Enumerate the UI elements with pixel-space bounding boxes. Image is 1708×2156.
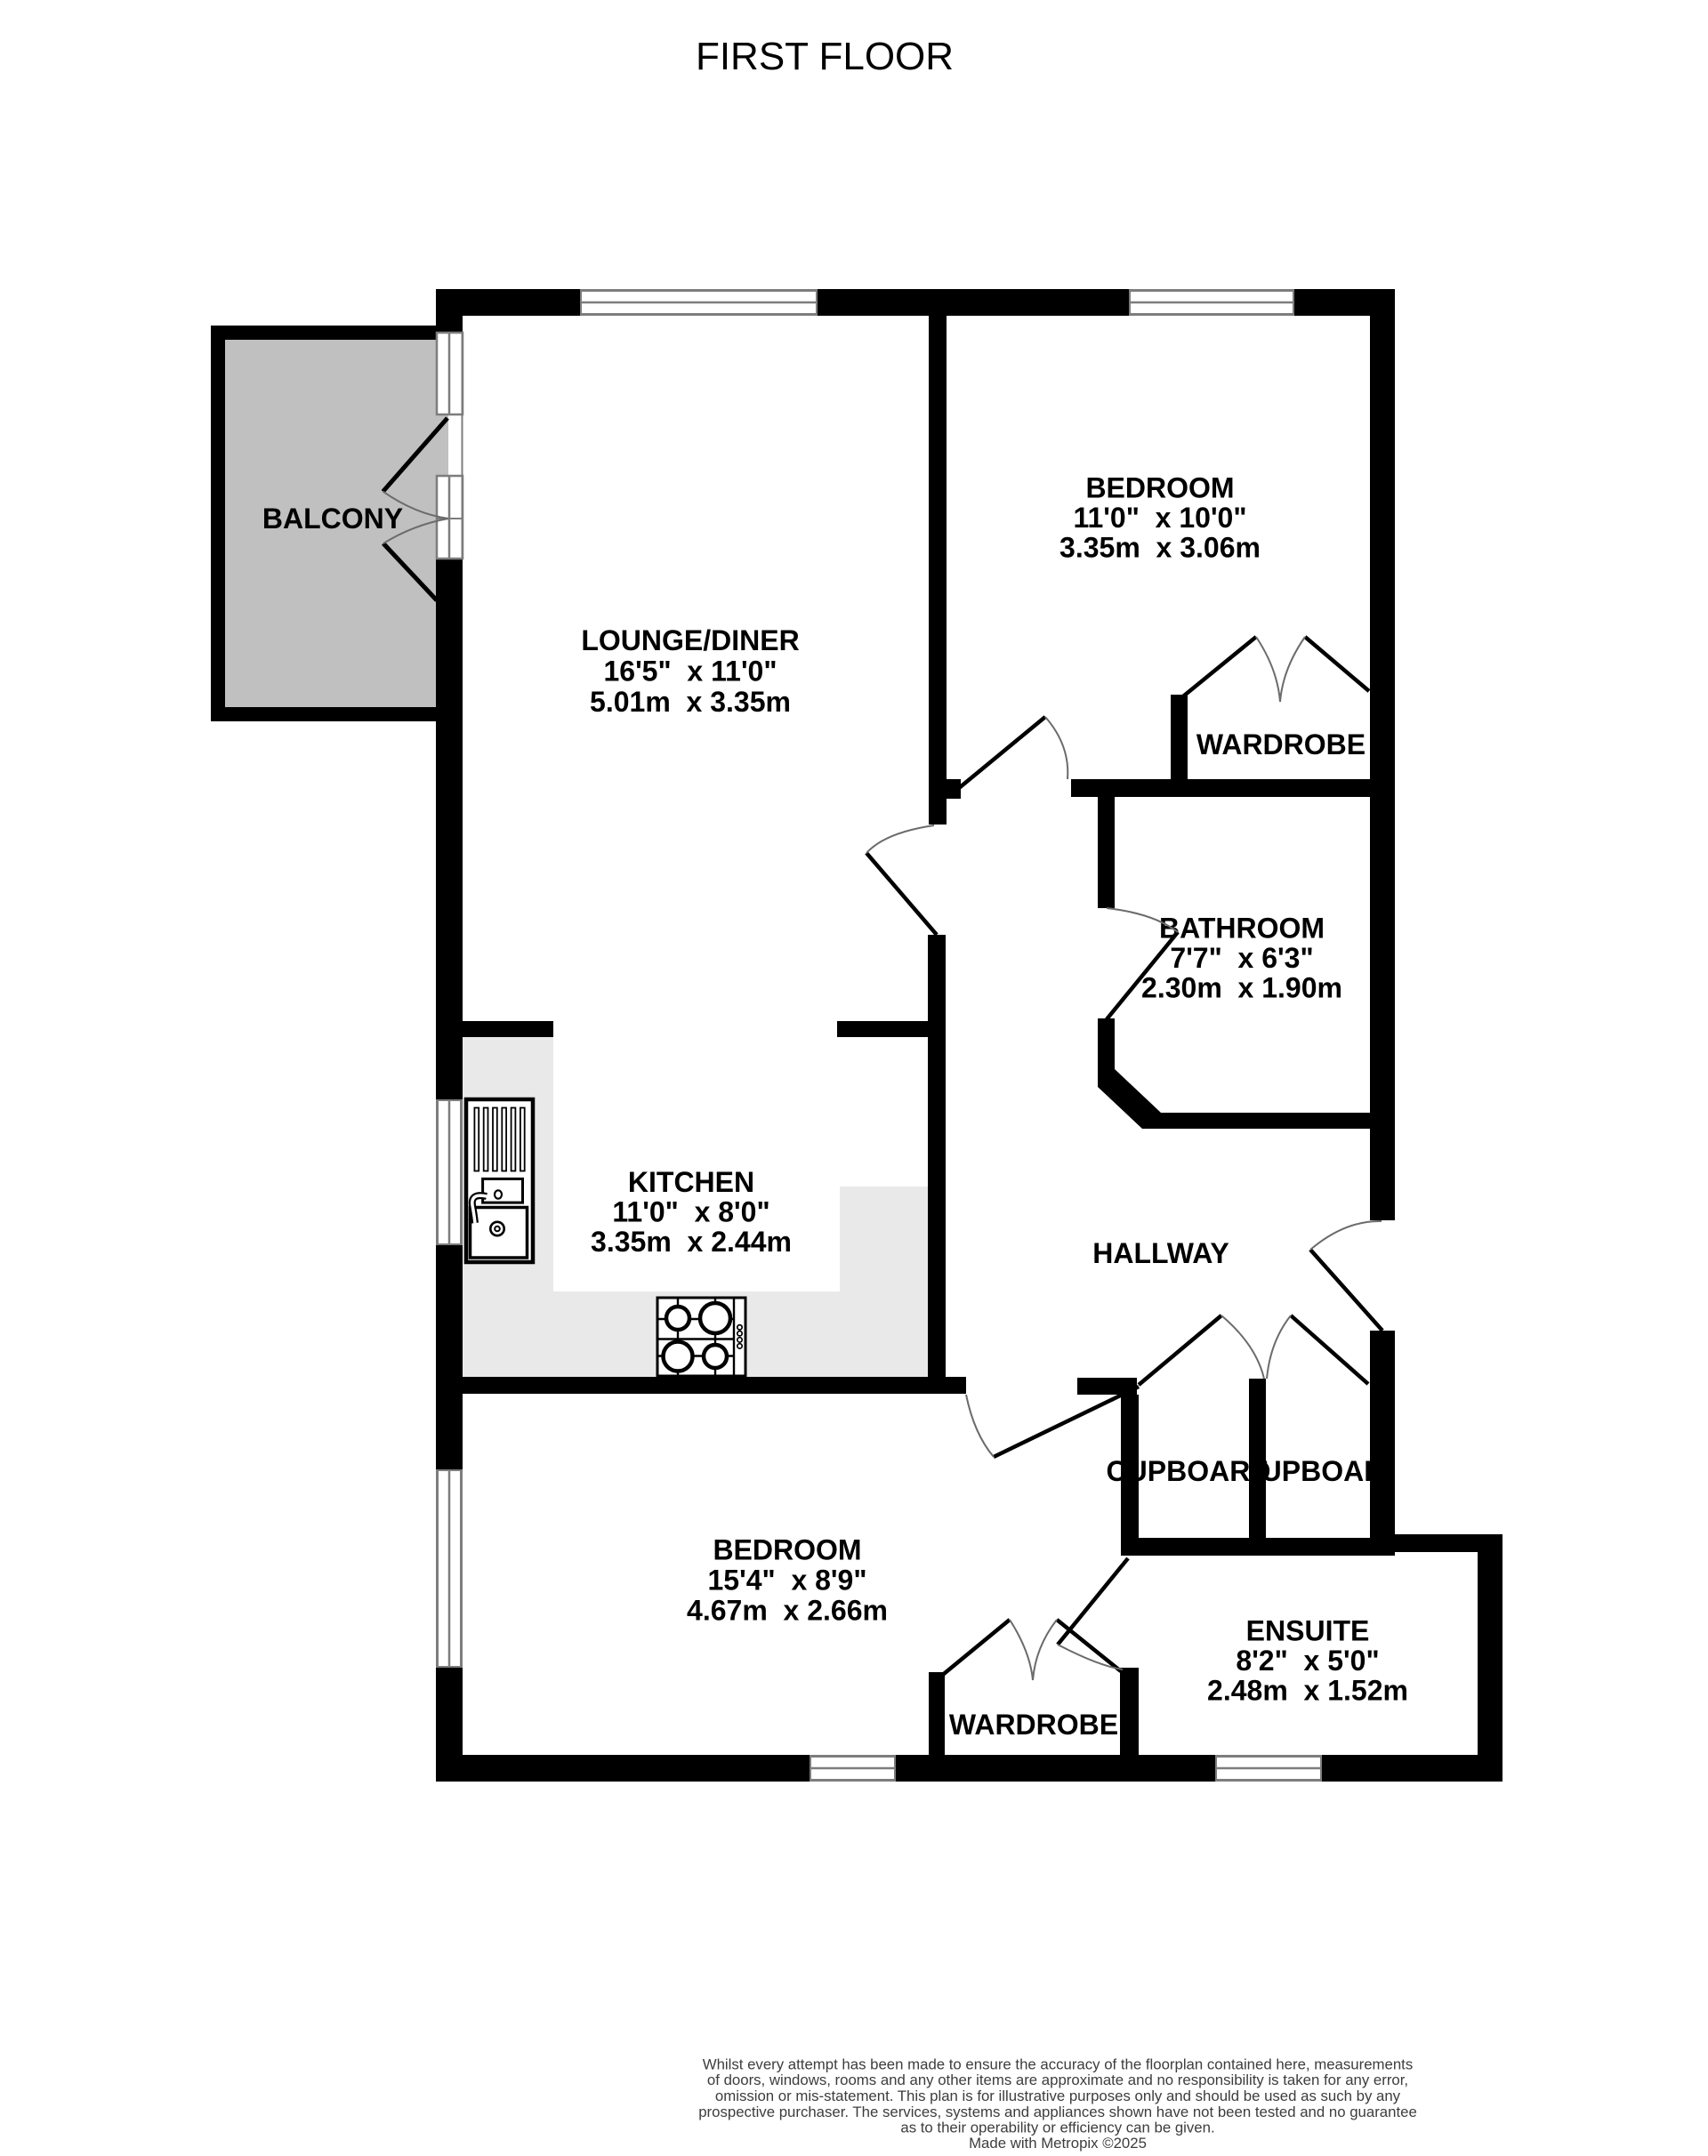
svg-text:omission or mis-statement. Thi: omission or mis-statement. This plan is … — [715, 2088, 1401, 2104]
svg-text:BATHROOM: BATHROOM — [1159, 913, 1325, 945]
svg-text:3.35m x 2.44m: 3.35m x 2.44m — [591, 1226, 792, 1258]
svg-text:HALLWAY: HALLWAY — [1092, 1237, 1229, 1269]
svg-text:Made with Metropix ©2025: Made with Metropix ©2025 — [969, 2135, 1147, 2152]
svg-text:11'0" x 8'0": 11'0" x 8'0" — [612, 1196, 769, 1228]
svg-text:WARDROBE: WARDROBE — [1196, 728, 1366, 760]
svg-text:3.35m x 3.06m: 3.35m x 3.06m — [1059, 532, 1261, 564]
svg-text:7'7" x 6'3": 7'7" x 6'3" — [1170, 942, 1313, 974]
svg-text:BALCONY: BALCONY — [262, 503, 403, 535]
svg-text:WARDROBE: WARDROBE — [949, 1709, 1118, 1741]
svg-text:as to their operability or eff: as to their operability or efficiency ca… — [900, 2120, 1214, 2136]
svg-text:BEDROOM: BEDROOM — [1085, 472, 1234, 504]
svg-text:LOUNGE/DINER: LOUNGE/DINER — [581, 624, 799, 656]
svg-text:FIRST FLOOR: FIRST FLOOR — [696, 35, 954, 78]
svg-text:8'2" x 5'0": 8'2" x 5'0" — [1236, 1645, 1379, 1677]
svg-text:5.01m x 3.35m: 5.01m x 3.35m — [590, 686, 791, 718]
svg-text:15'4" x 8'9": 15'4" x 8'9" — [707, 1565, 866, 1597]
svg-text:4.67m x 2.66m: 4.67m x 2.66m — [687, 1595, 888, 1627]
svg-text:Whilst every attempt has been: Whilst every attempt has been made to en… — [703, 2056, 1413, 2073]
svg-text:of doors, windows, rooms and a: of doors, windows, rooms and any other i… — [707, 2072, 1408, 2088]
svg-text:2.30m x 1.90m: 2.30m x 1.90m — [1141, 972, 1342, 1004]
svg-text:KITCHEN: KITCHEN — [628, 1166, 754, 1198]
svg-text:2.48m x 1.52m: 2.48m x 1.52m — [1207, 1675, 1408, 1707]
svg-text:BEDROOM: BEDROOM — [713, 1534, 861, 1566]
svg-text:11'0" x 10'0": 11'0" x 10'0" — [1073, 502, 1246, 534]
svg-text:ENSUITE: ENSUITE — [1246, 1615, 1370, 1647]
svg-text:prospective purchaser. The ser: prospective purchaser. The services, sys… — [698, 2104, 1417, 2120]
svg-text:16'5" x 11'0": 16'5" x 11'0" — [603, 656, 777, 688]
